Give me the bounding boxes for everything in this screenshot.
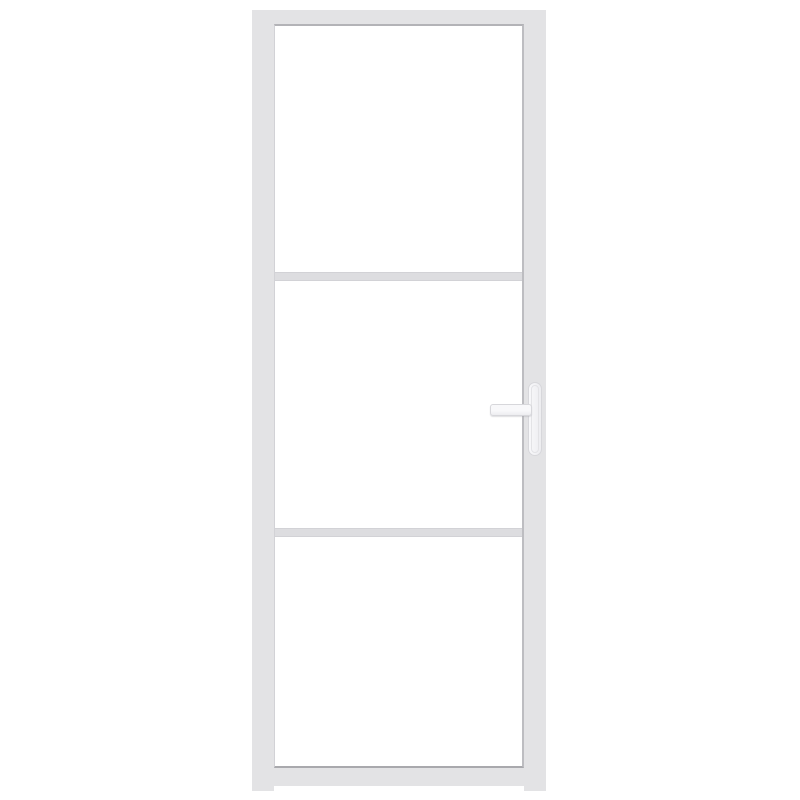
door xyxy=(252,10,546,786)
glass-pane-bottom xyxy=(275,537,522,766)
product-photo-background xyxy=(0,0,800,800)
glass-pane-top xyxy=(275,26,522,272)
door-glass-opening xyxy=(274,24,524,768)
door-handle-backplate-inner xyxy=(531,385,539,453)
glass-pane-middle xyxy=(275,281,522,528)
glazing-bar-upper xyxy=(275,272,522,281)
door-foot-right xyxy=(524,786,546,791)
glazing-bar-lower xyxy=(275,528,522,537)
door-handle-backplate xyxy=(528,382,542,456)
door-foot-left xyxy=(252,786,274,791)
